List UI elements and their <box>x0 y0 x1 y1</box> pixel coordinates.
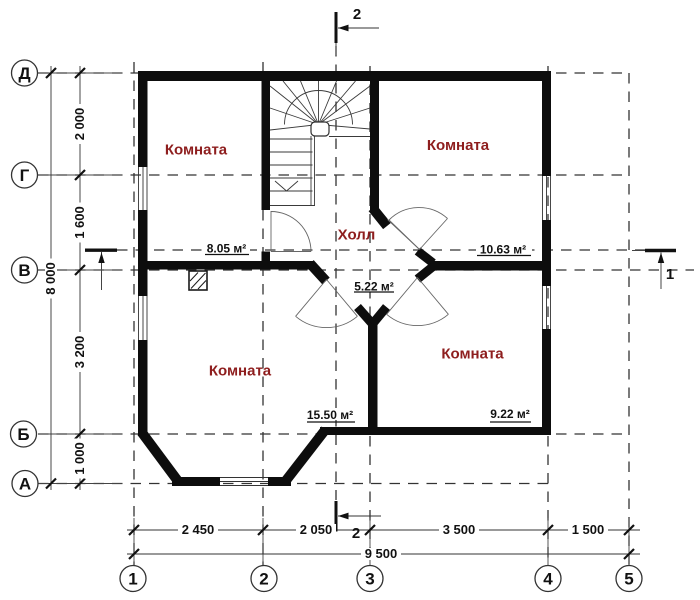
svg-text:Д: Д <box>18 64 30 83</box>
svg-text:2 050: 2 050 <box>300 522 333 537</box>
svg-text:3 500: 3 500 <box>443 522 476 537</box>
svg-text:2: 2 <box>259 570 268 589</box>
svg-text:9.22 м²: 9.22 м² <box>490 407 530 421</box>
svg-text:4: 4 <box>543 570 553 589</box>
svg-text:Комната: Комната <box>427 137 490 154</box>
svg-text:1 600: 1 600 <box>72 206 87 239</box>
svg-text:3: 3 <box>365 570 374 589</box>
svg-text:Комната: Комната <box>209 363 272 380</box>
svg-text:Г: Г <box>20 166 30 185</box>
svg-text:9 500: 9 500 <box>365 546 398 561</box>
svg-text:2 450: 2 450 <box>182 522 215 537</box>
svg-text:В: В <box>18 261 30 280</box>
svg-text:Холл: Холл <box>338 227 376 244</box>
svg-text:1 000: 1 000 <box>72 442 87 475</box>
svg-text:1: 1 <box>666 266 674 283</box>
svg-text:1: 1 <box>128 570 137 589</box>
svg-text:3 200: 3 200 <box>72 336 87 369</box>
svg-text:2: 2 <box>352 525 360 542</box>
svg-text:10.63 м²: 10.63 м² <box>480 243 526 257</box>
svg-text:5: 5 <box>624 570 633 589</box>
svg-text:А: А <box>19 475 31 494</box>
svg-text:15.50 м²: 15.50 м² <box>307 408 353 422</box>
svg-text:2 000: 2 000 <box>72 108 87 141</box>
svg-text:8 000: 8 000 <box>43 262 58 295</box>
svg-text:Комната: Комната <box>441 346 504 363</box>
svg-text:Б: Б <box>17 425 29 444</box>
svg-text:1 500: 1 500 <box>572 522 605 537</box>
svg-text:2: 2 <box>353 6 361 23</box>
svg-text:8.05 м²: 8.05 м² <box>207 242 247 256</box>
svg-text:Комната: Комната <box>165 142 228 159</box>
